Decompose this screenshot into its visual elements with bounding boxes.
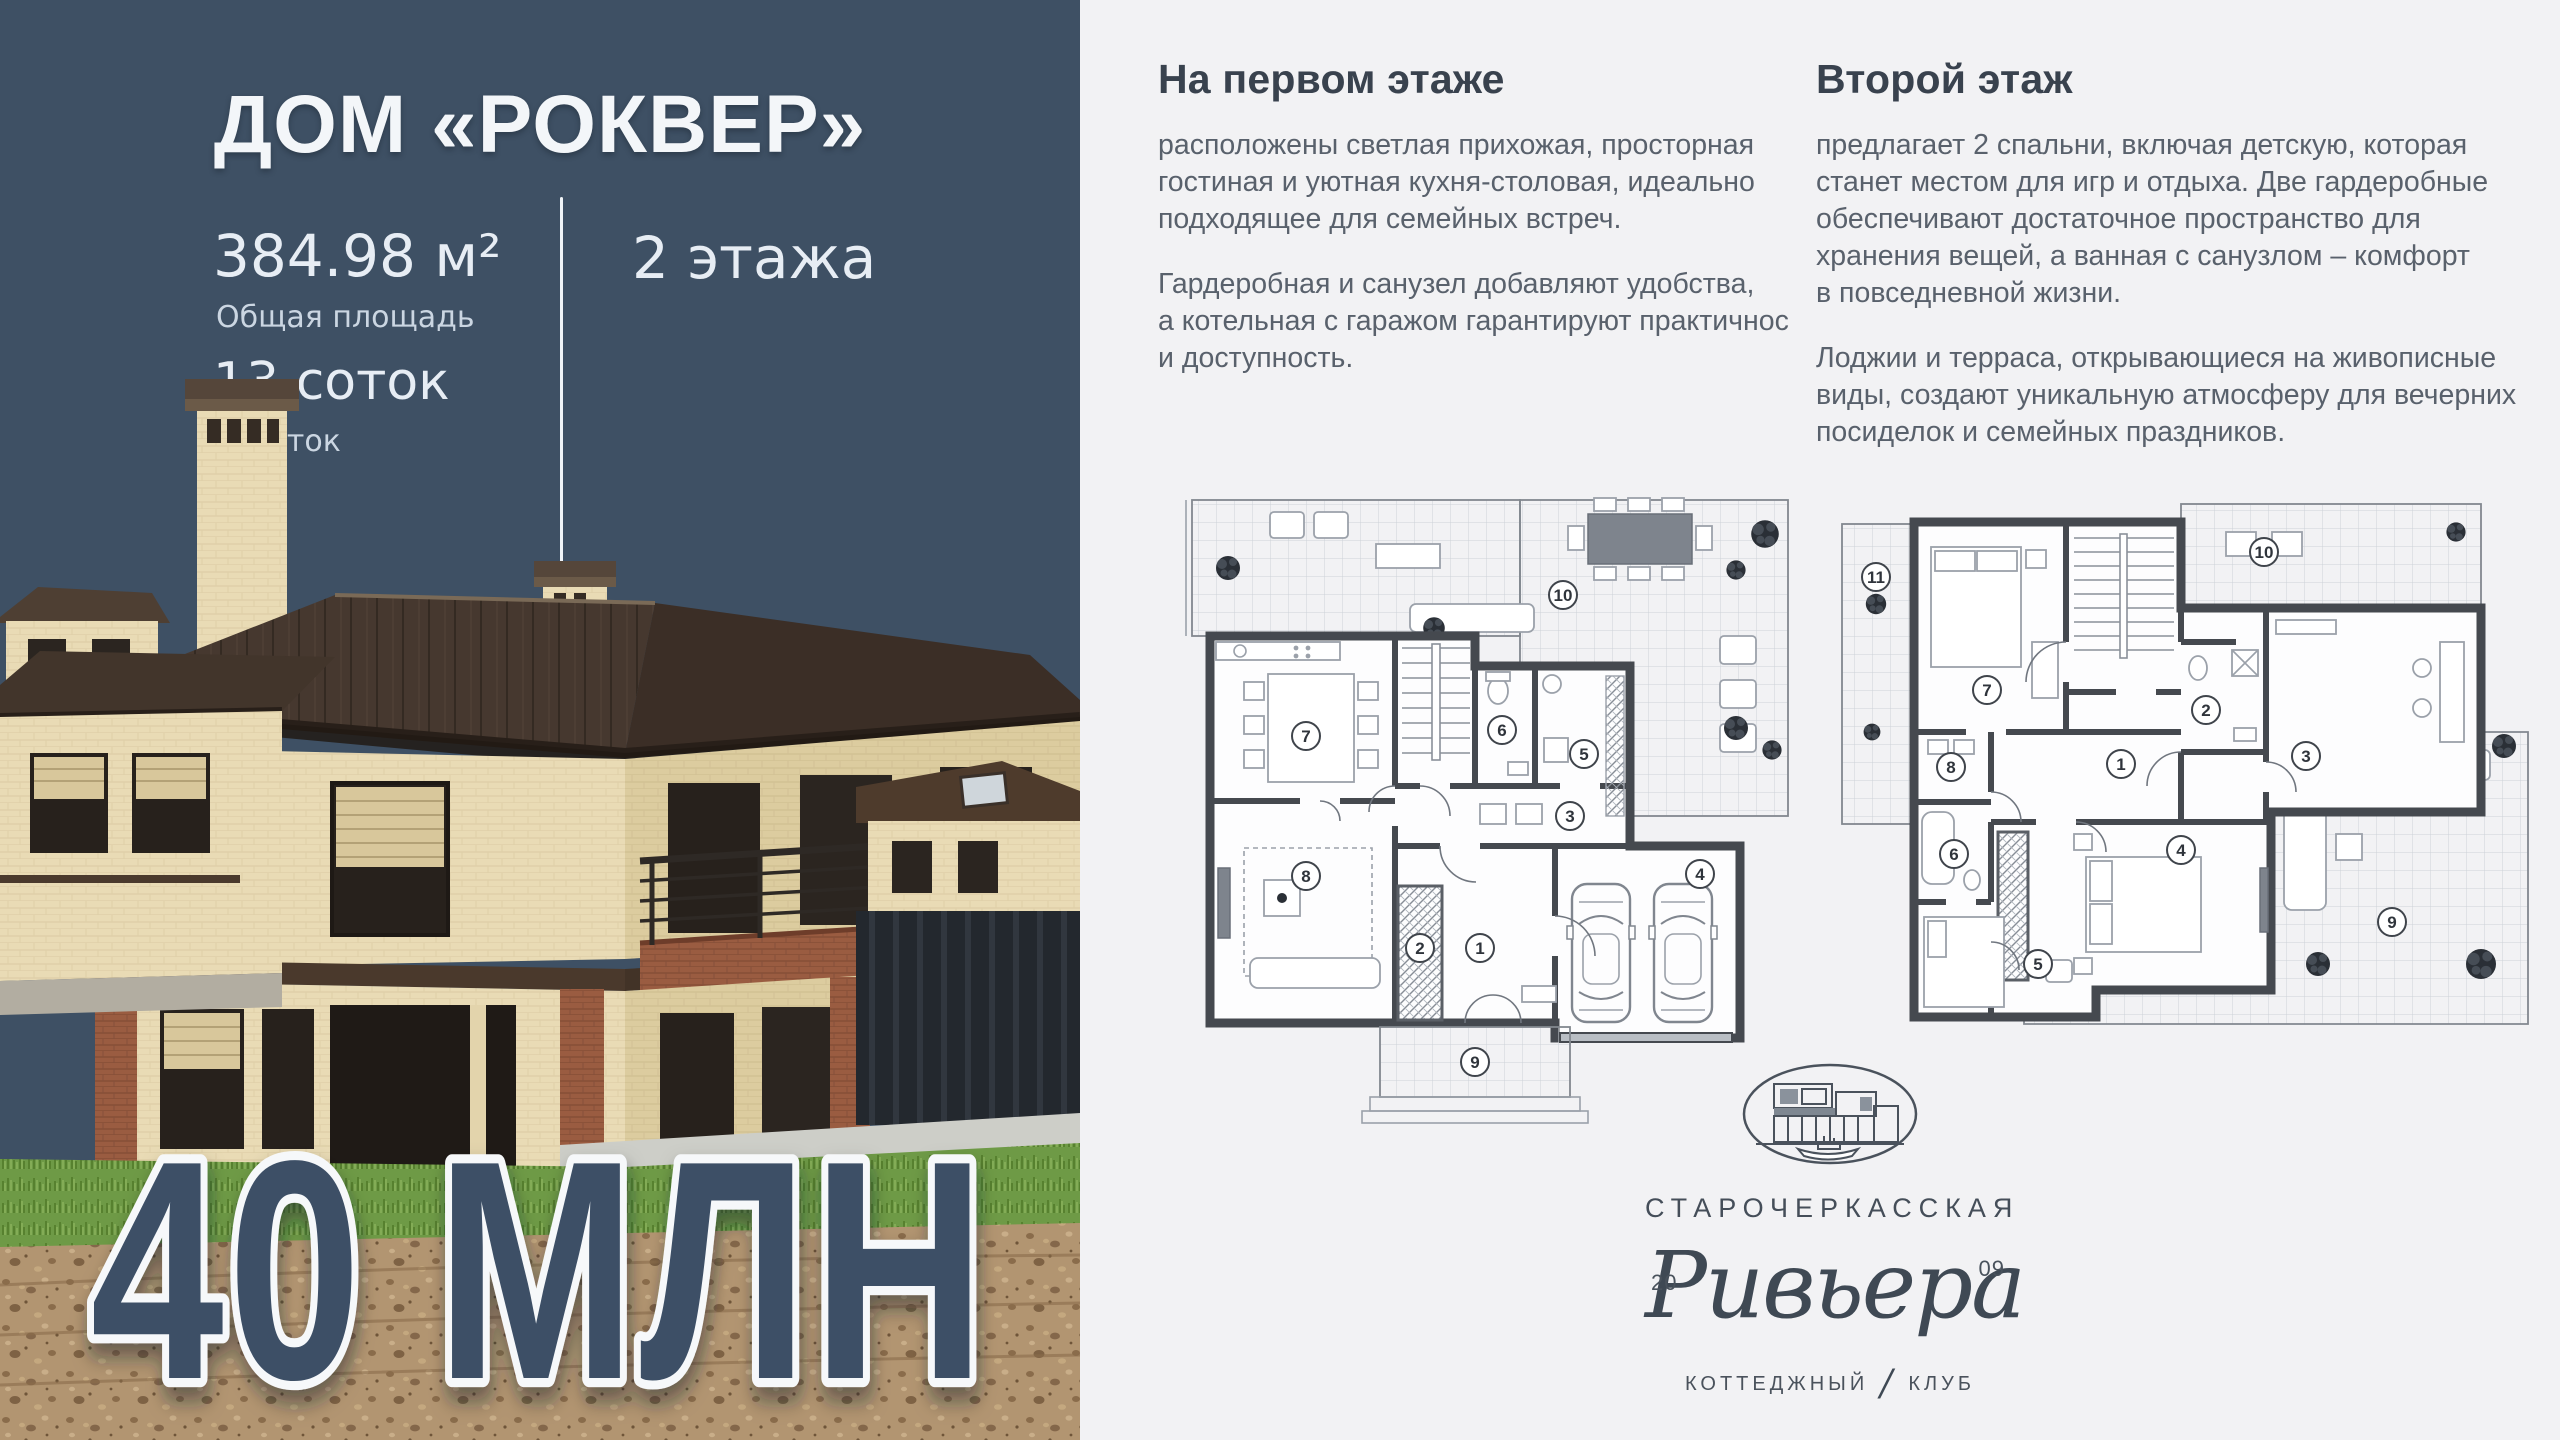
svg-text:9: 9 — [2387, 913, 2396, 932]
logo-slash: / — [1880, 1363, 1896, 1404]
wing-window-2 — [132, 753, 210, 853]
svg-text:8: 8 — [1946, 758, 1955, 777]
room-number: 10 — [2250, 538, 2278, 566]
room-number: 1 — [2107, 750, 2135, 778]
left-wing — [0, 711, 282, 981]
svg-text:7: 7 — [1982, 681, 1991, 700]
room-number: 9 — [1461, 1048, 1489, 1076]
price-banner: 40 МЛН — [15, 1118, 1065, 1440]
svg-text:4: 4 — [1695, 865, 1705, 884]
room-number: 4 — [2167, 836, 2195, 864]
car-icon — [1649, 884, 1717, 1022]
logo-location-text: СТАРОЧЕРКАССКАЯ — [1645, 1193, 2015, 1224]
floor-plan-first: 10 7 6 5 3 8 4 2 1 9 — [1180, 486, 1800, 1131]
svg-text:3: 3 — [2301, 747, 2310, 766]
first-floor-heading: На первом этаже — [1158, 56, 1808, 103]
svg-text:5: 5 — [2033, 955, 2042, 974]
room-number: 6 — [1488, 716, 1516, 744]
room-number: 3 — [2292, 742, 2320, 770]
real-estate-poster: ДОМ «РОКВЕР» 384.98 м² Общая площадь 13 … — [0, 0, 2560, 1440]
logo-year-left: 20 — [1651, 1270, 1677, 1296]
room-number: 11 — [1862, 563, 1890, 591]
room-number: 8 — [1937, 753, 1965, 781]
logo-name-script: Ривьера — [1645, 1232, 2024, 1339]
floor-plan-second: 11 10 7 2 3 1 8 4 6 5 9 — [1836, 492, 2536, 1037]
svg-text:6: 6 — [1949, 845, 1958, 864]
chimney-large — [185, 379, 299, 655]
svg-text:1: 1 — [1475, 939, 1484, 958]
room-number: 8 — [1292, 862, 1320, 890]
upper-window-2 — [332, 783, 448, 935]
room-number: 7 — [1973, 676, 2001, 704]
svg-text:9: 9 — [1470, 1053, 1479, 1072]
svg-text:11: 11 — [1867, 568, 1885, 587]
second-floor-description: Второй этаж предлагает 2 спальни, включа… — [1816, 56, 2526, 479]
floors-value: 2 этажа — [632, 224, 876, 292]
second-floor-paragraph-1: предлагает 2 спальни, включая детскую, к… — [1816, 127, 2526, 312]
svg-text:6: 6 — [1497, 721, 1506, 740]
dark-fence — [856, 911, 1080, 1125]
first-floor-paragraph-2: Гардеробная и санузел добавляют удобства… — [1158, 266, 1808, 377]
svg-text:10: 10 — [2255, 543, 2274, 562]
svg-text:5: 5 — [1579, 745, 1588, 764]
room-number: 4 — [1686, 860, 1714, 888]
svg-text:8: 8 — [1301, 867, 1310, 886]
logo-club-right: КЛУБ — [1908, 1373, 1975, 1395]
second-floor-heading: Второй этаж — [1816, 56, 2526, 103]
logo-emblem-icon — [1740, 1062, 1920, 1167]
room-number: 5 — [2024, 950, 2052, 978]
wing-window-1 — [30, 753, 108, 853]
neighbor-house-right — [856, 761, 1080, 1125]
house-title: ДОМ «РОКВЕР» — [0, 78, 1080, 172]
room-number: 7 — [1292, 722, 1320, 750]
first-floor-paragraph-1: расположены светлая прихожая, просторная… — [1158, 127, 1808, 238]
left-panel: ДОМ «РОКВЕР» 384.98 м² Общая площадь 13 … — [0, 0, 1080, 1440]
svg-text:1: 1 — [2116, 755, 2125, 774]
second-floor-paragraph-2: Лоджии и терраса, открывающиеся на живоп… — [1816, 340, 2526, 451]
logo-subtitle: КОТТЕДЖНЫЙ/КЛУБ — [1645, 1358, 2015, 1399]
room-number: 2 — [1406, 934, 1434, 962]
room-number: 2 — [2192, 696, 2220, 724]
total-area-value: 384.98 м² — [213, 222, 501, 290]
price-text: 40 МЛН — [90, 1118, 989, 1440]
total-area-label: Общая площадь — [216, 300, 475, 335]
room-number: 5 — [1570, 740, 1598, 768]
car-icon — [1567, 884, 1635, 1022]
side-wing-roof — [0, 651, 335, 717]
svg-text:2: 2 — [1415, 939, 1424, 958]
right-panel: На первом этаже расположены светлая прих… — [1080, 0, 2560, 1440]
room-number: 3 — [1556, 802, 1584, 830]
first-floor-description: На первом этаже расположены светлая прих… — [1158, 56, 1808, 405]
svg-text:3: 3 — [1565, 807, 1574, 826]
svg-text:2: 2 — [2201, 701, 2210, 720]
logo-name-row: 20 Ривьера 09 — [1645, 1226, 2015, 1356]
svg-text:7: 7 — [1301, 727, 1310, 746]
room-number: 6 — [1940, 840, 1968, 868]
logo-year-right: 09 — [1979, 1256, 2005, 1282]
hall-cabinet — [1522, 986, 1556, 1002]
room-number: 9 — [2378, 908, 2406, 936]
room-number: 1 — [1466, 934, 1494, 962]
svg-text:10: 10 — [1554, 586, 1573, 605]
room-number: 10 — [1549, 581, 1577, 609]
developer-logo: СТАРОЧЕРКАССКАЯ 20 Ривьера 09 КОТТЕДЖНЫЙ… — [1645, 1062, 2015, 1399]
logo-club-left: КОТТЕДЖНЫЙ — [1685, 1373, 1868, 1395]
svg-text:4: 4 — [2176, 841, 2186, 860]
